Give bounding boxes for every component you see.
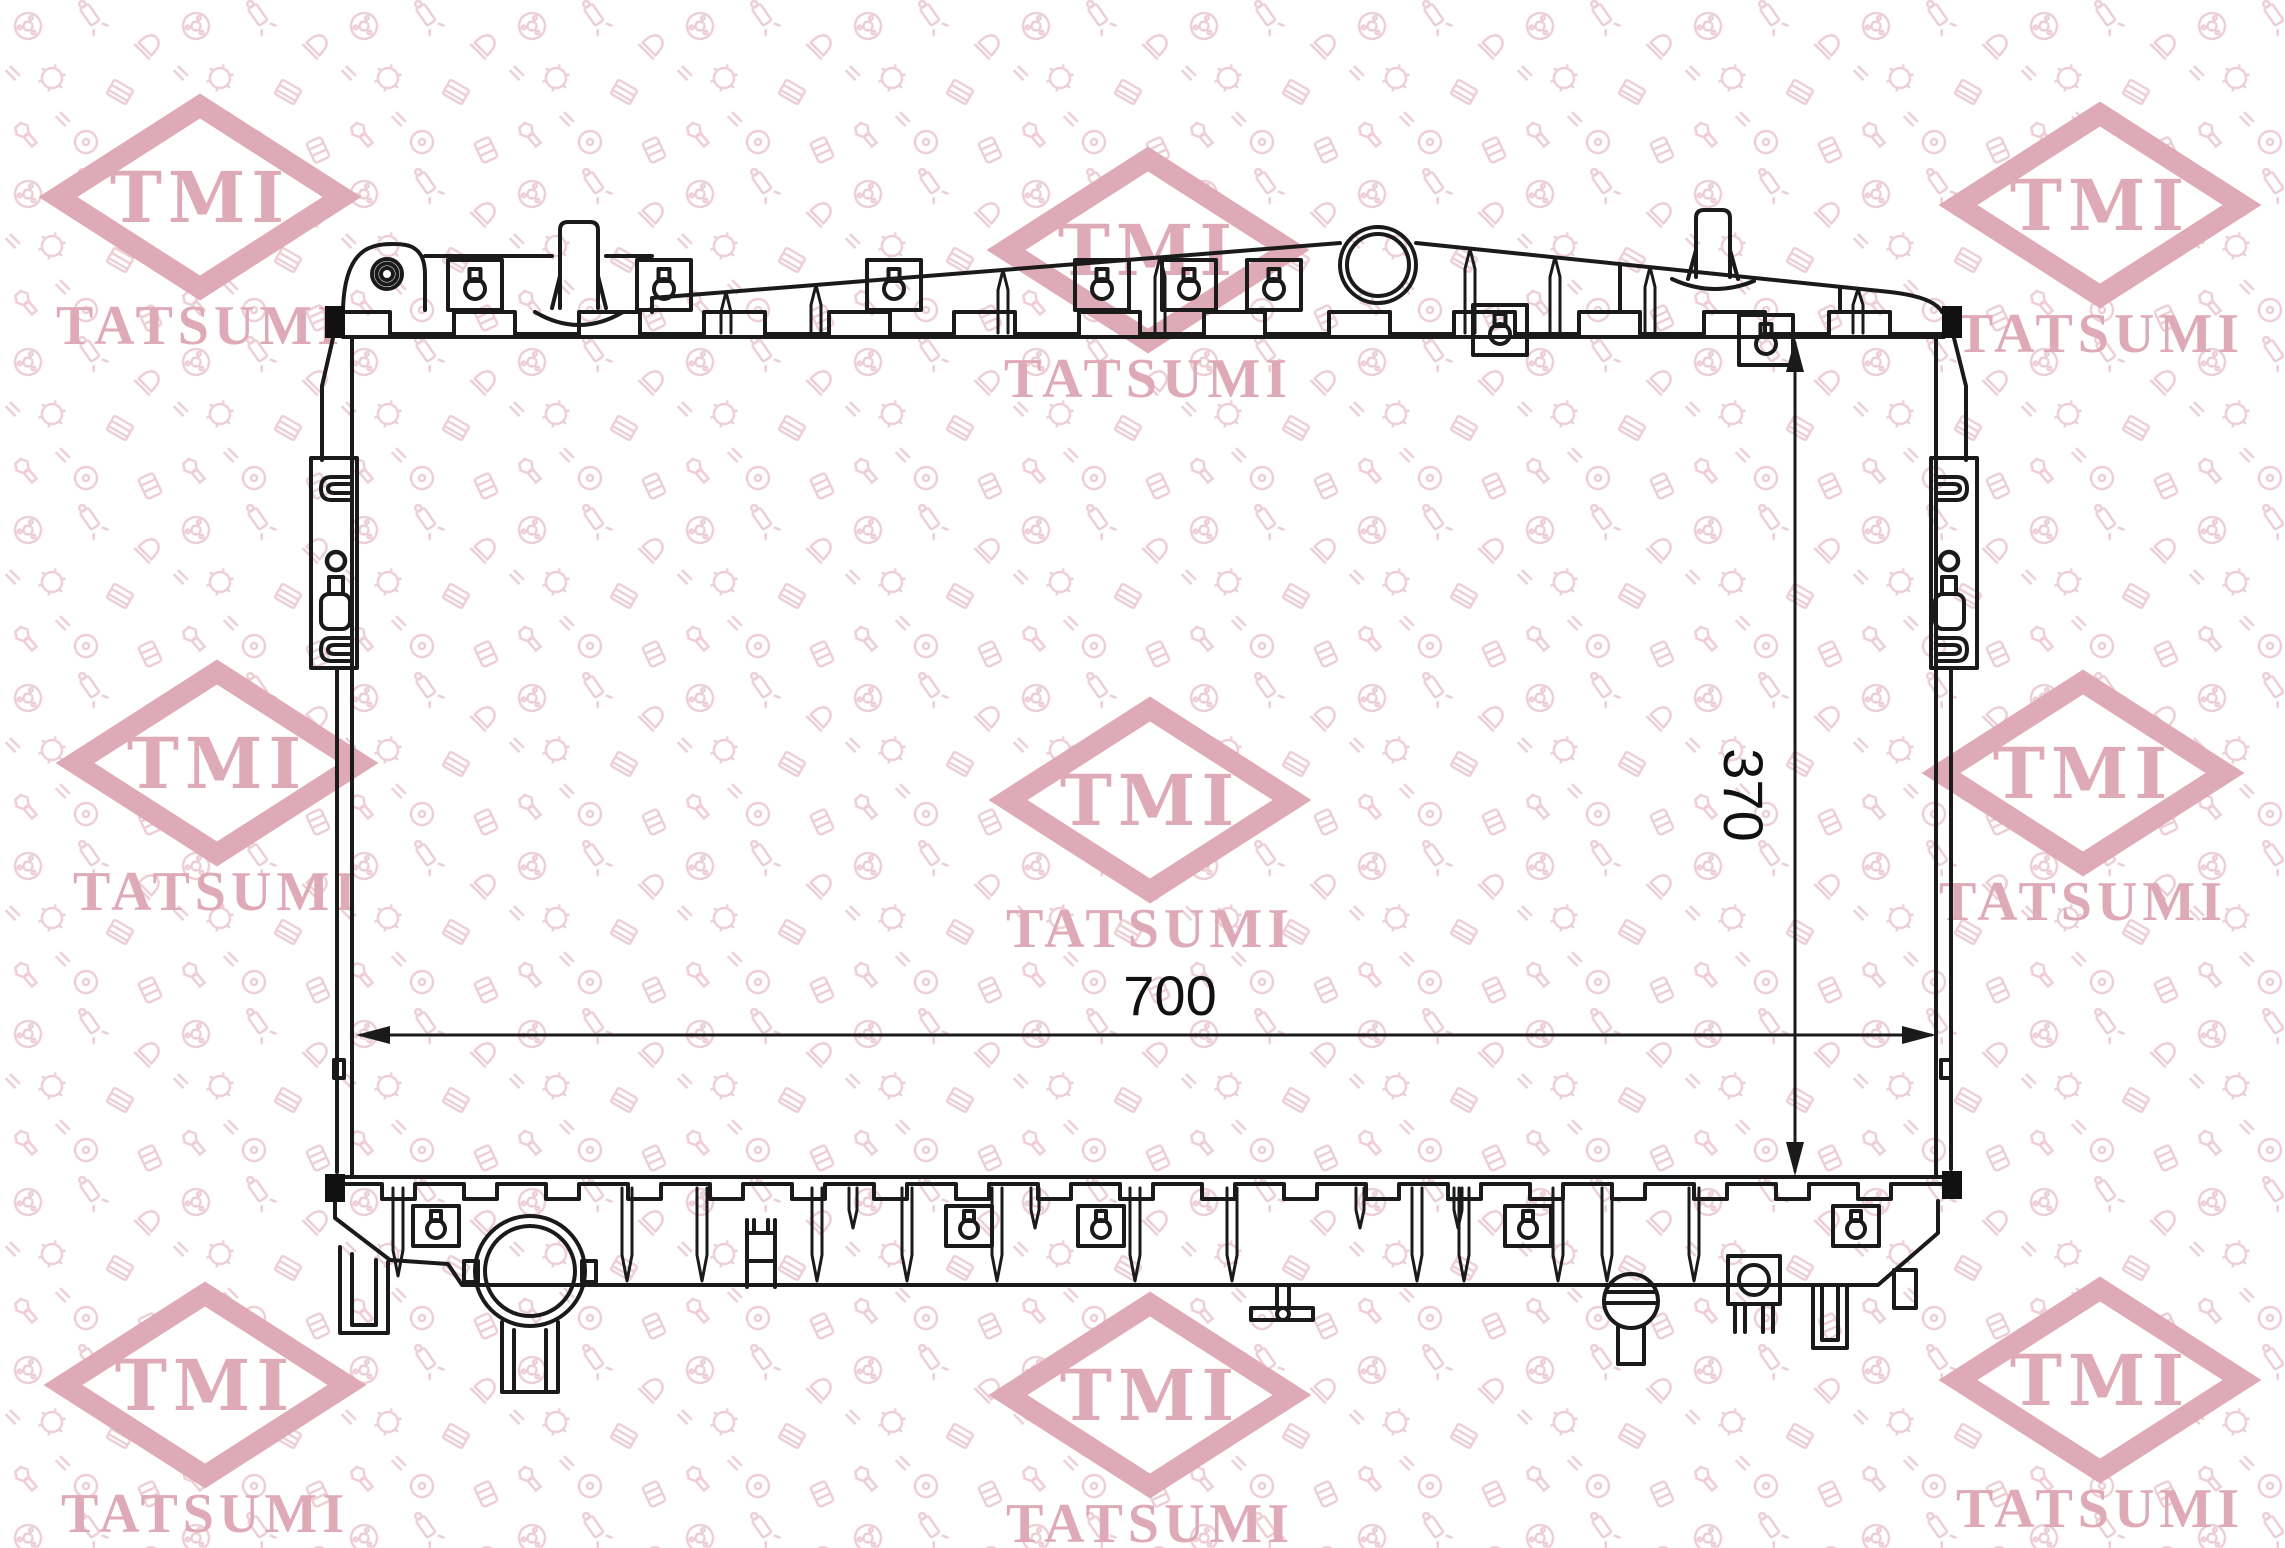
height-dimension-label: 370 <box>1712 748 1775 841</box>
bottom-left-cap <box>325 1174 345 1202</box>
radiator-technical-drawing: TMI TATSUMI <box>0 0 2285 1548</box>
bottom-right-cap <box>1942 1171 1962 1199</box>
drawing-sheet: TMI TATSUMI <box>0 0 2285 1548</box>
width-dimension-label: 700 <box>1123 964 1216 1027</box>
top-right-cap <box>1942 306 1962 338</box>
top-left-cap <box>325 306 345 338</box>
